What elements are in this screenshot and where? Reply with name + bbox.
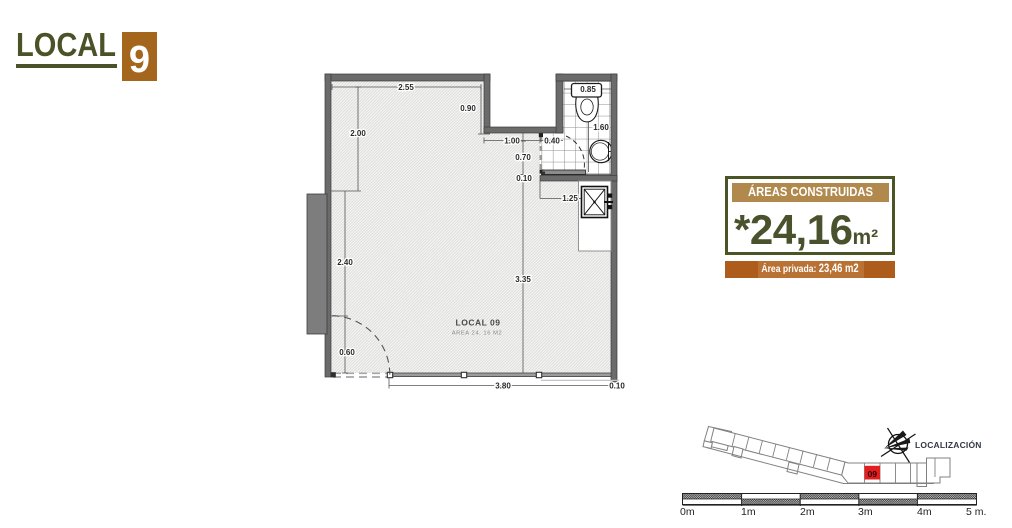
svg-text:3.35: 3.35: [515, 275, 531, 284]
svg-text:1.25: 1.25: [562, 194, 578, 203]
svg-text:0.85: 0.85: [580, 85, 596, 94]
svg-text:0.40: 0.40: [544, 137, 560, 146]
svg-text:0.90: 0.90: [460, 104, 476, 113]
svg-text:2.55: 2.55: [398, 83, 414, 92]
svg-text:09: 09: [867, 469, 877, 479]
svg-text:2.40: 2.40: [337, 258, 353, 267]
svg-text:0.10: 0.10: [516, 174, 532, 183]
svg-text:1.60: 1.60: [593, 123, 609, 132]
svg-text:LOCAL 09: LOCAL 09: [456, 318, 501, 328]
svg-text:0.70: 0.70: [515, 153, 531, 162]
svg-text:3.80: 3.80: [495, 382, 511, 391]
svg-text:1.00: 1.00: [504, 137, 520, 146]
svg-text:2.00: 2.00: [350, 129, 366, 138]
svg-text:0.60: 0.60: [339, 348, 355, 357]
svg-text:AREA 24. 16 M2: AREA 24. 16 M2: [452, 331, 503, 337]
svg-text:0.10: 0.10: [609, 382, 625, 391]
